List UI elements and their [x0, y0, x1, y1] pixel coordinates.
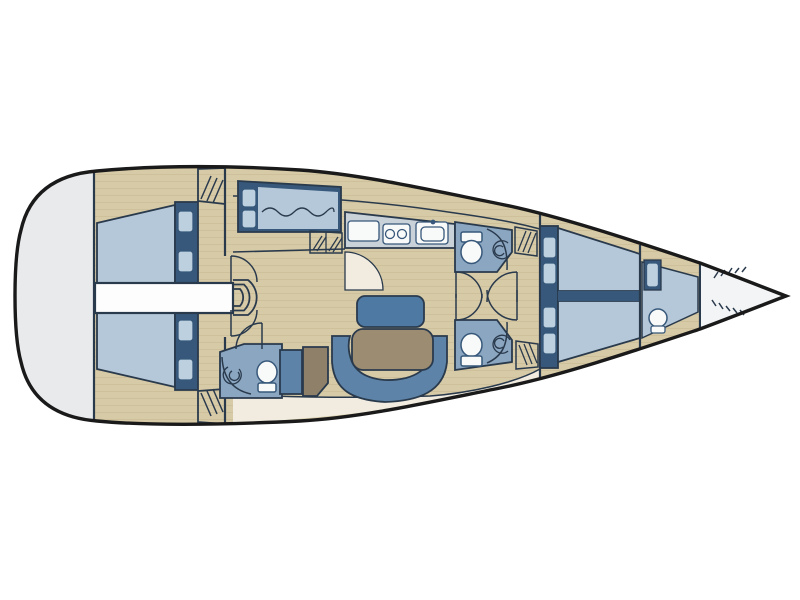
- berth-divider: [558, 291, 640, 301]
- pillow: [543, 263, 556, 284]
- fridge-counter: [348, 221, 379, 241]
- pillow: [647, 263, 659, 287]
- pillow: [178, 359, 193, 380]
- toilet-bowl: [461, 334, 482, 357]
- toilet-base: [651, 326, 665, 333]
- pillow: [543, 307, 556, 328]
- pillow: [543, 237, 556, 258]
- pillow: [242, 189, 256, 207]
- single-berth-upper: [238, 181, 341, 232]
- pillow: [178, 211, 193, 232]
- toilet-tank: [258, 383, 276, 392]
- yacht-floorplan: [0, 0, 800, 600]
- head-lower-aft: [220, 344, 282, 398]
- toilet-tank: [461, 356, 482, 366]
- faucet: [431, 220, 436, 225]
- toilet-bowl: [649, 309, 667, 327]
- anchor-locker-floor: [701, 264, 784, 328]
- side-seat: [280, 350, 302, 394]
- burner: [398, 230, 407, 239]
- pillow: [178, 251, 193, 272]
- pillow: [543, 333, 556, 354]
- pillow: [178, 320, 193, 341]
- dining-table: [352, 329, 433, 370]
- pillow: [242, 210, 256, 228]
- anchor-locker: [701, 264, 784, 328]
- engine-walkway: [95, 283, 233, 313]
- floorplan-svg: [0, 0, 800, 600]
- stool: [303, 347, 328, 396]
- bench-seat: [357, 296, 424, 327]
- burner: [386, 230, 395, 239]
- stern-cockpit-deck: [15, 171, 94, 421]
- toilet-bowl: [257, 361, 277, 383]
- toilet-bowl: [461, 241, 482, 264]
